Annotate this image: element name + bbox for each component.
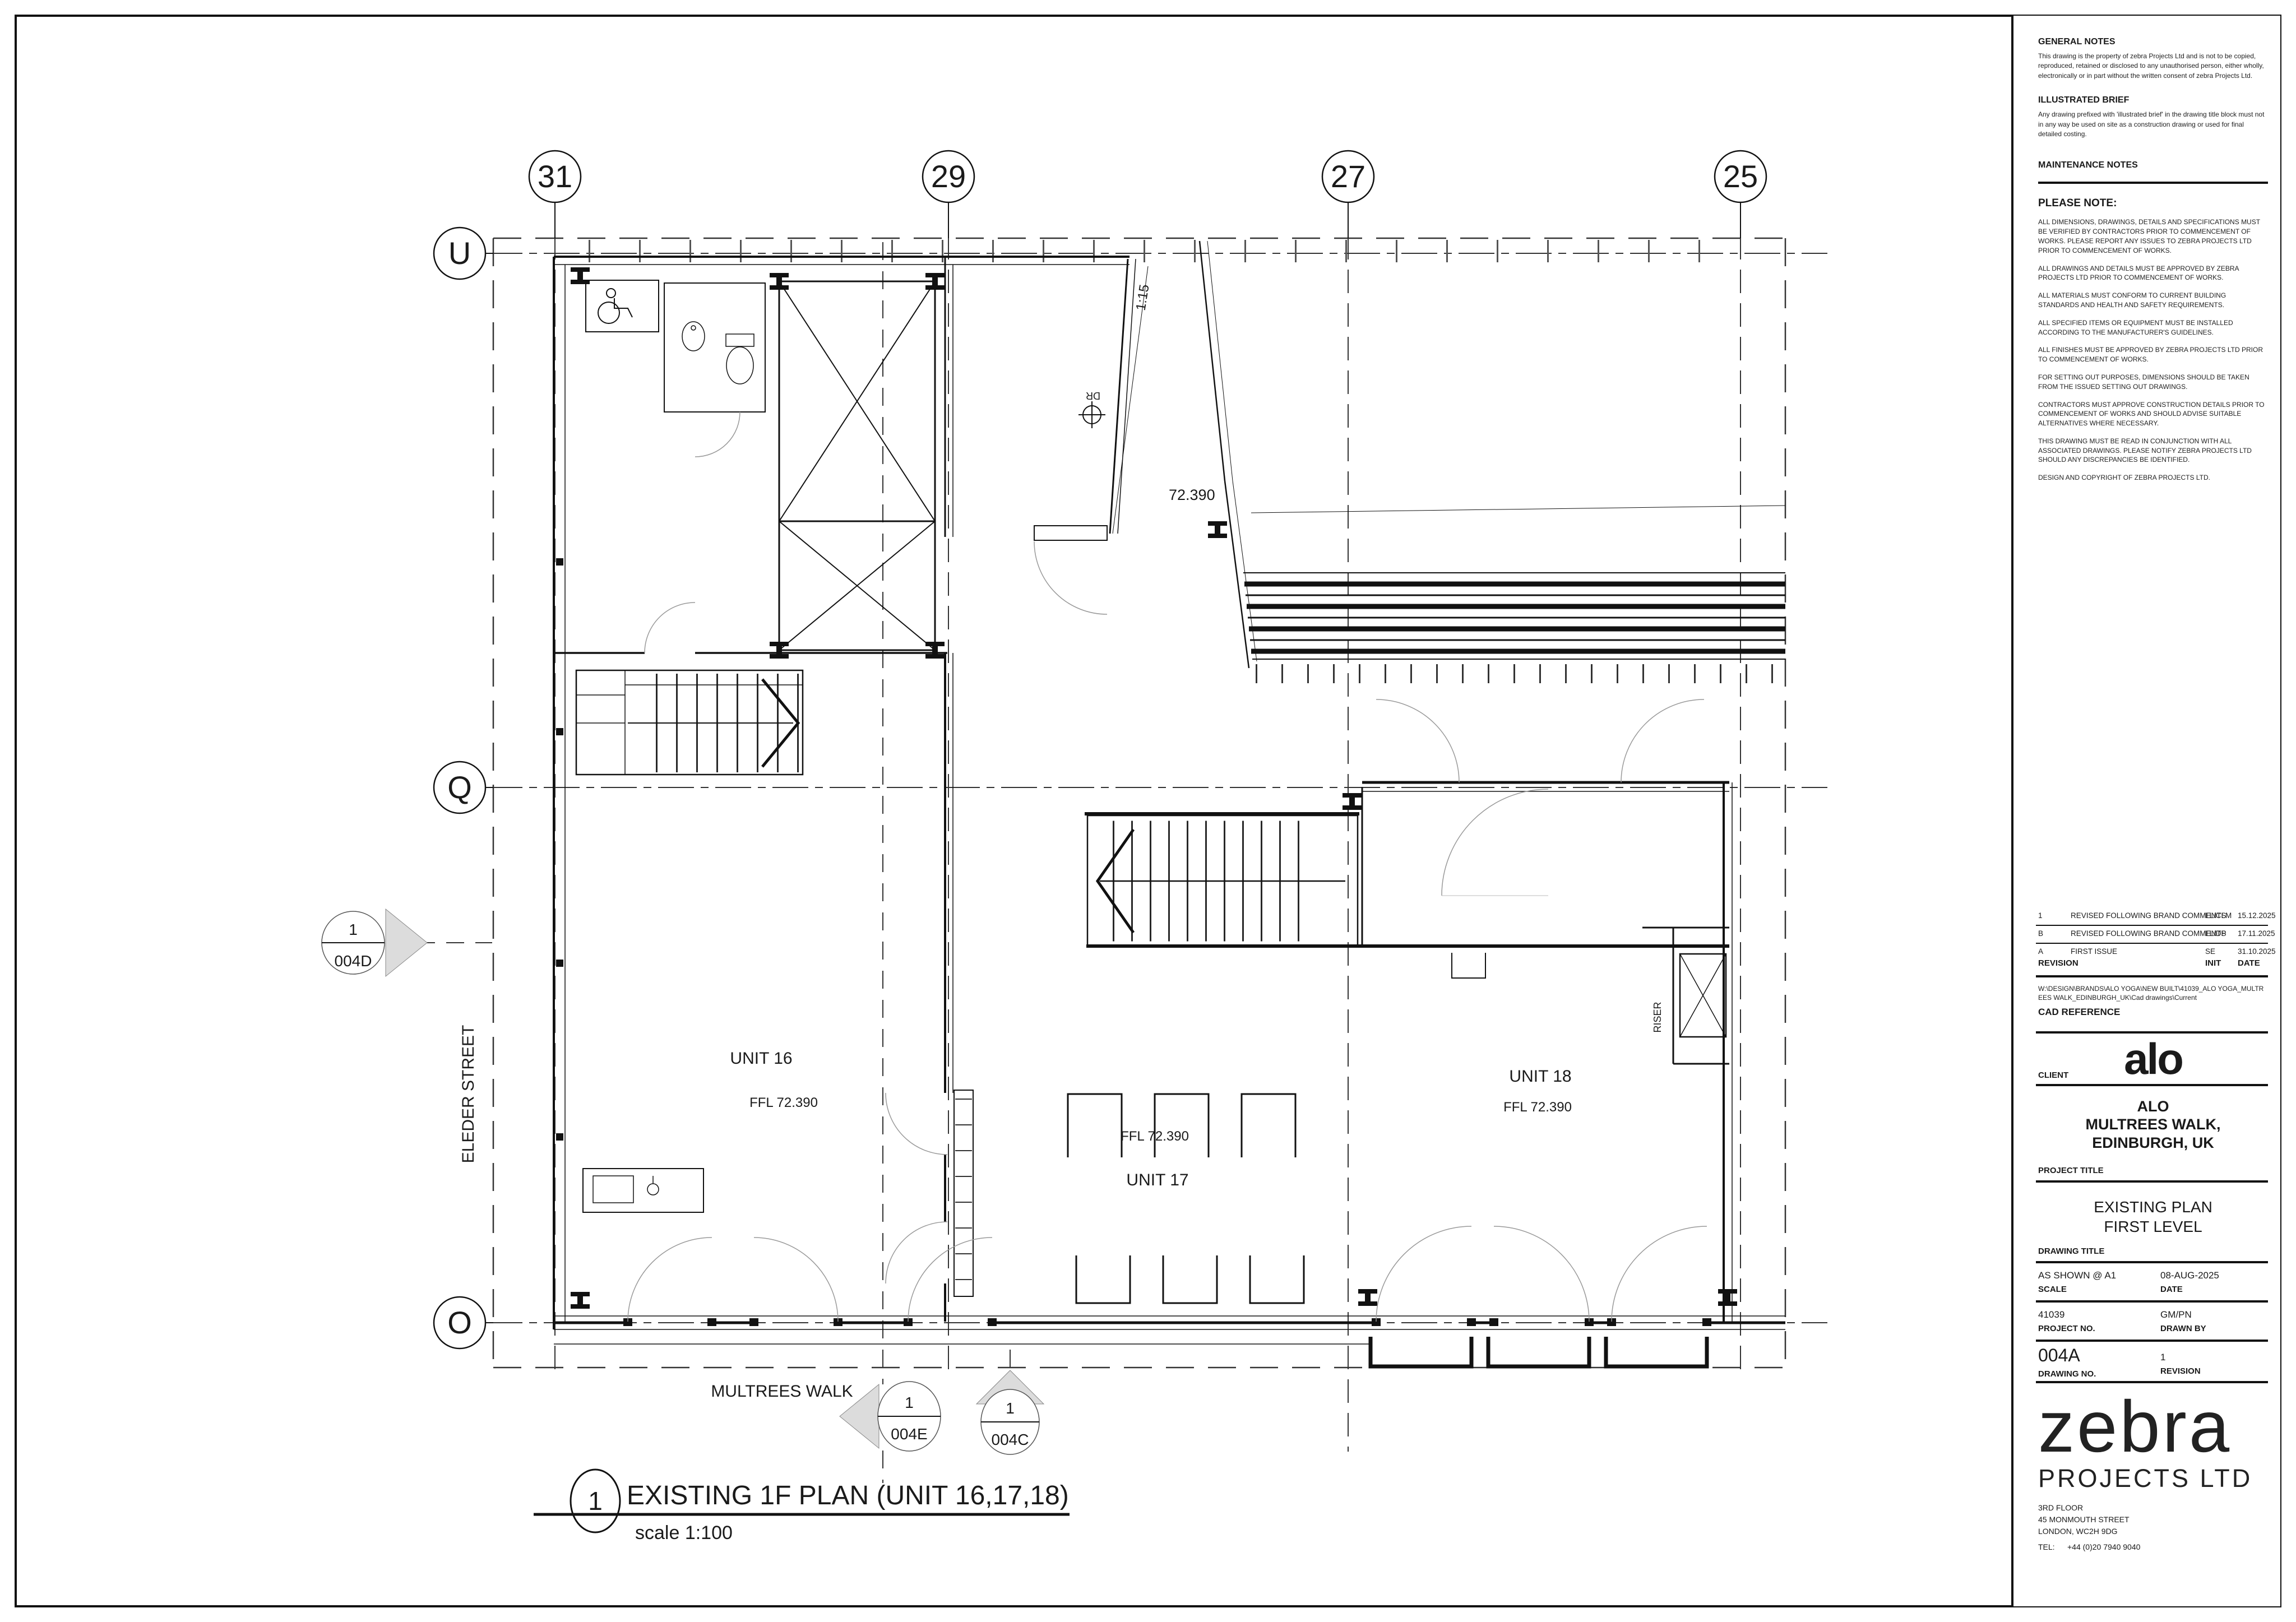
unit16-ffl: FFL 72.390 <box>749 1095 818 1110</box>
marker-004d-num: 1 <box>349 921 358 938</box>
rev-id: 1 <box>2038 911 2071 920</box>
corridor-walls <box>1362 782 1729 978</box>
wc-room <box>664 283 765 457</box>
drain-label: DR <box>1086 390 1100 401</box>
title-block: GENERAL NOTES This drawing is the proper… <box>2011 16 2280 1606</box>
street-label-left: ELEDER STREET <box>459 1025 478 1164</box>
storefront-door-arcs <box>628 1226 1707 1322</box>
rev-date: 17.11.2025 <box>2238 929 2275 938</box>
grid-bubble-U: U <box>434 228 493 279</box>
section-cut-lines <box>388 242 1010 1483</box>
zebra-logo-sub: PROJECTS LTD <box>2038 1464 2268 1493</box>
door-arc-unit16-b <box>886 1222 947 1283</box>
door-arc-ramp-room <box>1034 541 1107 614</box>
door-arc-unit16-a <box>886 1093 947 1155</box>
marker-004c-num: 1 <box>1006 1399 1015 1417</box>
please-note-item: CONTRACTORS MUST APPROVE CONSTRUCTION DE… <box>2038 400 2268 428</box>
door-arc-shaft <box>645 603 695 653</box>
project-no-value: 41039 <box>2038 1309 2095 1320</box>
grid-column-lines <box>555 202 1740 1452</box>
drawn-by-value: GM/PN <box>2160 1309 2206 1320</box>
rev-init: SE <box>2205 947 2238 956</box>
door-arc-corridor <box>1442 789 1548 896</box>
scale-label: SCALE <box>2038 1285 2116 1294</box>
rev-date: 15.12.2025 <box>2238 911 2276 920</box>
general-notes-body: This drawing is the property of zebra Pr… <box>2038 52 2268 81</box>
grid-bubble-O: O <box>434 1297 493 1348</box>
cad-path: W:\DESIGN\BRANDS\ALO YOGA\NEW BUILT\4103… <box>2038 984 2268 1002</box>
grid-label-27: 27 <box>1331 159 1365 194</box>
please-note-item: THIS DRAWING MUST BE READ IN CONJUNCTION… <box>2038 437 2268 465</box>
marker-004c-ref: 004C <box>992 1431 1029 1448</box>
rev-date: 31.10.2025 <box>2238 947 2276 956</box>
grid-label-U: U <box>448 235 471 271</box>
door-arc-unit18-a <box>1376 699 1459 782</box>
rev-desc: REVISED FOLLOWING BRAND COMMENTS <box>2071 929 2205 938</box>
revision-row: 1REVISED FOLLOWING BRAND COMMENTSLL/CLM1… <box>2038 911 2268 920</box>
unit17-ffl: FFL 72.390 <box>1121 1129 1189 1144</box>
marker-004e-ref: 004E <box>891 1425 927 1443</box>
tel-label: TEL: <box>2038 1542 2067 1551</box>
client-name-line: EDINBURGH, UK <box>2038 1134 2268 1152</box>
notes-panel: GENERAL NOTES This drawing is the proper… <box>2013 22 2280 491</box>
stair-left <box>576 670 803 775</box>
section-marker-004e: 1 004E <box>840 1382 941 1451</box>
rooflight-louver-band <box>1243 573 1785 659</box>
rev-desc: REVISED FOLLOWING BRAND COMMENTS <box>2071 911 2205 920</box>
view-title: 1 EXISTING 1F PLAN (UNIT 16,17,18) scale… <box>534 1470 1070 1544</box>
grid-row-lines <box>487 253 1827 1323</box>
address-line: LONDON, WC2H 9DG <box>2038 1526 2268 1537</box>
stair-center <box>1085 814 1729 946</box>
project-no-label: PROJECT NO. <box>2038 1324 2095 1333</box>
unit18-ffl: FFL 72.390 <box>1503 1100 1572 1115</box>
drain-symbol <box>1078 401 1105 428</box>
illustrated-brief-body: Any drawing prefixed with 'illustrated b… <box>2038 110 2268 139</box>
grid-bubble-25: 25 <box>1715 151 1766 238</box>
zebra-logo: zebra <box>2038 1390 2268 1463</box>
unit17-label: UNIT 17 <box>1126 1171 1188 1189</box>
view-title-num: 1 <box>588 1486 603 1516</box>
client-name-line: ALO <box>2038 1097 2268 1115</box>
client-section: alo CLIENT <box>2013 1037 2280 1080</box>
riser-label: RISER <box>1652 1002 1663 1032</box>
cad-reference: W:\DESIGN\BRANDS\ALO YOGA\NEW BUILT\4103… <box>2013 984 2280 1018</box>
revision-value: 1 <box>2160 1345 2201 1363</box>
grid-label-31: 31 <box>538 159 572 194</box>
revision-label: REVISION <box>2160 1366 2201 1376</box>
revision-label: REVISION <box>2038 958 2205 968</box>
riser-shaft <box>1642 928 1729 1064</box>
marker-004e-num: 1 <box>905 1394 914 1411</box>
drawn-by-label: DRAWN BY <box>2160 1324 2206 1333</box>
storefront-sill-boxes <box>1371 1337 1707 1366</box>
site-boundary <box>493 238 1785 1368</box>
client-name-line: MULTREES WALK, <box>2038 1115 2268 1133</box>
marker-004d-ref: 004D <box>335 952 372 970</box>
date-label: DATE <box>2238 958 2260 968</box>
grid-bubble-Q: Q <box>434 762 493 813</box>
storefront <box>554 1316 1785 1344</box>
rev-desc: FIRST ISSUE <box>2071 947 2205 956</box>
please-note-item: DESIGN AND COPYRIGHT OF ZEBRA PROJECTS L… <box>2038 473 2268 483</box>
drawing-no-label: DRAWING NO. <box>2038 1369 2096 1379</box>
wc-door-arc <box>695 412 740 457</box>
street-label-bottom: MULTREES WALK <box>711 1382 853 1401</box>
ramp-gradient-label: 1:15 <box>1133 284 1152 312</box>
grid-label-29: 29 <box>931 159 966 194</box>
floor-plan-canvas: 31 29 27 25 U Q O <box>0 0 2296 1622</box>
maintenance-notes-title: MAINTENANCE NOTES <box>2038 160 2268 170</box>
view-title-text: EXISTING 1F PLAN (UNIT 16,17,18) <box>627 1481 1069 1510</box>
project-title: EXISTING PLAN FIRST LEVEL <box>2013 1197 2280 1236</box>
kitchenette <box>583 1169 703 1212</box>
drawing-no-value: 004A <box>2038 1345 2096 1366</box>
project-title-label: PROJECT TITLE <box>2013 1166 2280 1175</box>
tel-value: +44 (0)20 7940 9040 <box>2067 1542 2140 1551</box>
cad-reference-label: CAD REFERENCE <box>2038 1007 2268 1018</box>
please-note-item: ALL SPECIFIED ITEMS OR EQUIPMENT MUST BE… <box>2038 318 2268 337</box>
sink-icon <box>682 322 705 351</box>
grid-bubble-31: 31 <box>529 151 581 238</box>
firm-logo: zebra PROJECTS LTD <box>2013 1390 2280 1493</box>
section-marker-004d: 1 004D <box>322 909 427 976</box>
scale-value: AS SHOWN @ A1 <box>2038 1270 2116 1281</box>
address-line: 3RD FLOOR <box>2038 1502 2268 1514</box>
door-arc-unit18-b <box>1621 699 1704 782</box>
client-name: ALO MULTREES WALK, EDINBURGH, UK <box>2013 1097 2280 1152</box>
date-label: DATE <box>2160 1285 2219 1294</box>
please-note-title: PLEASE NOTE: <box>2038 197 2268 210</box>
accessible-wc <box>586 280 659 332</box>
grid-bubble-29: 29 <box>923 151 974 238</box>
grid-label-O: O <box>447 1305 472 1340</box>
please-note-item: ALL DRAWINGS AND DETAILS MUST BE APPROVE… <box>2038 264 2268 283</box>
rev-init: LL/CLM <box>2205 911 2238 920</box>
general-notes-title: GENERAL NOTES <box>2038 37 2268 47</box>
revision-footer: REVISIONINITDATE <box>2038 958 2268 968</box>
grid-label-25: 25 <box>1723 159 1758 194</box>
unit18-label: UNIT 18 <box>1509 1067 1571 1086</box>
illustrated-brief-title: ILLUSTRATED BRIEF <box>2038 95 2268 105</box>
rev-id: B <box>2038 929 2071 938</box>
revision-row: AFIRST ISSUESE31.10.2025 <box>2038 947 2268 956</box>
rev-id: A <box>2038 947 2071 956</box>
address-line: 45 MONMOUTH STREET <box>2038 1514 2268 1526</box>
please-note-item: ALL MATERIALS MUST CONFORM TO CURRENT BU… <box>2038 291 2268 310</box>
shaft-x-braced <box>779 281 935 650</box>
right-exterior-wall <box>1724 782 1732 1323</box>
revision-row: BREVISED FOLLOWING BRAND COMMENTSLL/DP17… <box>2038 929 2268 938</box>
please-note-item: ALL DIMENSIONS, DRAWINGS, DETAILS AND SP… <box>2038 217 2268 255</box>
toilet-icon <box>726 334 754 384</box>
please-note-item: FOR SETTING OUT PURPOSES, DIMENSIONS SHO… <box>2038 373 2268 392</box>
rev-init: LL/DP <box>2205 929 2238 938</box>
level-annotation: 72.390 <box>1169 486 1215 503</box>
project-title-line: FIRST LEVEL <box>2038 1217 2268 1236</box>
firm-address: 3RD FLOOR 45 MONMOUTH STREET LONDON, WC2… <box>2013 1502 2280 1537</box>
fitting-rooms <box>954 1090 1304 1303</box>
section-marker-004c: 1 004C <box>976 1370 1044 1454</box>
drawing-sheet: 31 29 27 25 U Q O <box>0 0 2296 1622</box>
date-value: 08-AUG-2025 <box>2160 1270 2219 1281</box>
view-title-scale: scale 1:100 <box>635 1522 733 1544</box>
project-title-line: EXISTING PLAN <box>2038 1197 2268 1217</box>
firm-tel: TEL:+44 (0)20 7940 9040 <box>2013 1542 2280 1551</box>
please-note-item: ALL FINISHES MUST BE APPROVED BY ZEBRA P… <box>2038 345 2268 364</box>
grid-bubble-27: 27 <box>1322 151 1374 238</box>
grid-label-Q: Q <box>447 770 472 805</box>
init-label: INIT <box>2205 958 2238 968</box>
drawing-title-label: DRAWING TITLE <box>2013 1246 2280 1256</box>
unit16-label: UNIT 16 <box>730 1049 792 1068</box>
wheelchair-icon <box>598 289 632 323</box>
